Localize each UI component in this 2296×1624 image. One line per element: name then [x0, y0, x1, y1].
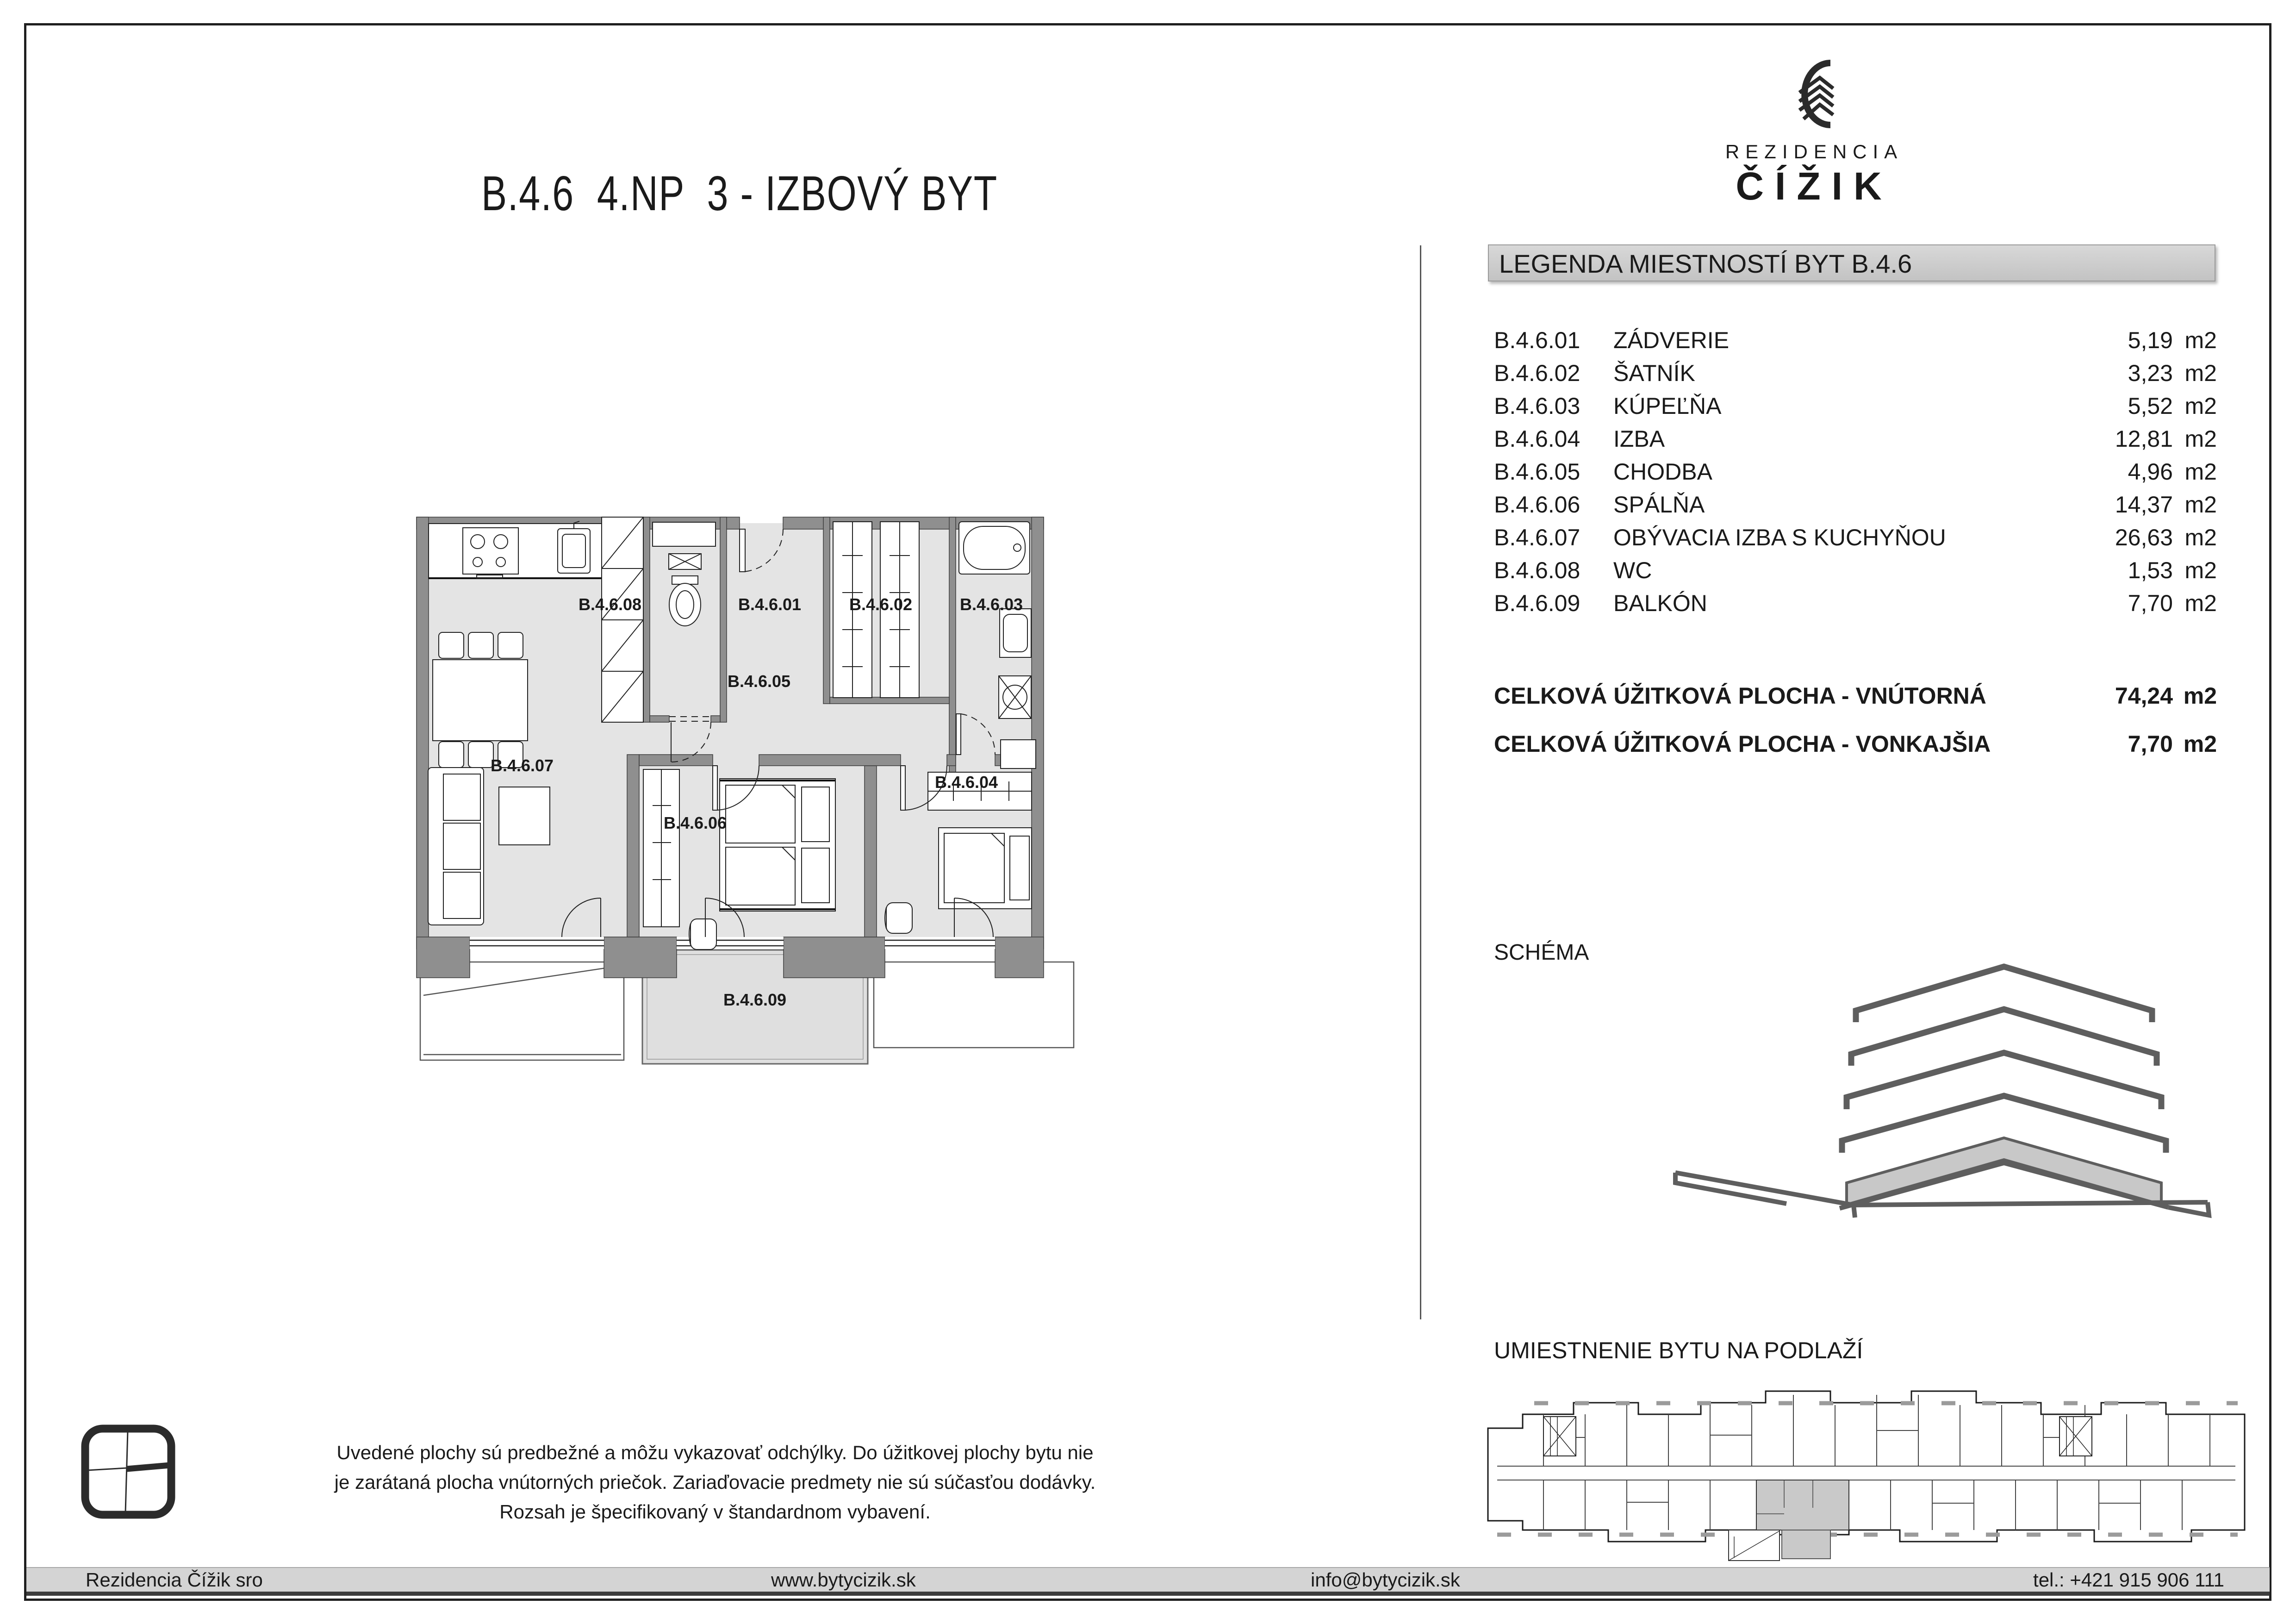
floor-location-plan	[1479, 1382, 2254, 1574]
label-room-08: B.4.6.08	[579, 595, 641, 614]
stair-elevator-core-left	[1543, 1417, 1576, 1456]
table-row: B.4.6.02 ŠATNÍK 3,23 m2	[1494, 357, 2217, 390]
room-name: BALKÓN	[1613, 587, 2099, 620]
room-unit: m2	[2173, 324, 2217, 357]
room-name: ZÁDVERIE	[1613, 324, 2099, 357]
dining-table	[433, 632, 528, 768]
total-inner-unit: m2	[2173, 680, 2217, 712]
label-room-03: B.4.6.03	[960, 595, 1023, 614]
stair-elevator-core-right	[2060, 1417, 2092, 1456]
label-room-04: B.4.6.04	[935, 773, 998, 792]
single-bed	[939, 828, 1032, 909]
hall-cabinets	[602, 517, 643, 722]
coffee-table	[499, 787, 550, 845]
room-unit: m2	[2173, 521, 2217, 554]
label-room-01: B.4.6.01	[738, 595, 801, 614]
total-outer-value: 7,70	[2094, 728, 2173, 760]
total-outer-unit: m2	[2173, 728, 2217, 760]
room-unit: m2	[2173, 587, 2217, 620]
room-area: 26,63	[2099, 521, 2173, 554]
room-code: B.4.6.05	[1494, 456, 1613, 488]
room-name: KÚPEĽŇA	[1613, 390, 2099, 423]
footer-email: info@bytycizik.sk	[1311, 1568, 1460, 1592]
balcony-windows	[470, 937, 995, 949]
table-row: B.4.6.08 WC 1,53 m2	[1494, 554, 2217, 587]
bedroom-chair	[689, 919, 716, 949]
room-code: B.4.6.03	[1494, 390, 1613, 423]
room-area: 5,19	[2099, 324, 2173, 357]
room-code: B.4.6.08	[1494, 554, 1613, 587]
bathroom-shelf	[1001, 740, 1036, 768]
stove	[463, 528, 518, 578]
table-row: B.4.6.04 IZBA 12,81 m2	[1494, 423, 2217, 456]
room-name: OBÝVACIA IZBA S KUCHYŇOU	[1613, 521, 2099, 554]
total-inner-label: CELKOVÁ ÚŽITKOVÁ PLOCHA - VNÚTORNÁ	[1494, 680, 2094, 712]
room-name: ŠATNÍK	[1613, 357, 2099, 390]
bathroom-sink	[1000, 609, 1031, 657]
room-table: B.4.6.01 ZÁDVERIE 5,19 m2 B.4.6.02 ŠATNÍ…	[1494, 324, 2217, 620]
room-code: B.4.6.02	[1494, 357, 1613, 390]
room-unit: m2	[2173, 390, 2217, 423]
column-divider	[1420, 245, 1421, 1319]
disclaimer-text: Uvedené plochy sú predbežné a môžu vykaz…	[331, 1438, 1099, 1527]
brand-logo: REZIDENCIA ČÍŽIK	[1715, 56, 1914, 209]
location-section-label: UMIESTNENIE BYTU NA PODLAŽÍ	[1494, 1337, 1863, 1364]
double-bed	[720, 779, 835, 911]
room-name: CHODBA	[1613, 456, 2099, 488]
sofa	[428, 768, 484, 925]
footer-bar: Rezidencia Čížik sro www.bytycizik.sk in…	[26, 1567, 2270, 1596]
room-name: IZBA	[1613, 423, 2099, 456]
label-room-06: B.4.6.06	[664, 813, 727, 832]
room-unit: m2	[2173, 423, 2217, 456]
room-code: B.4.6.06	[1494, 488, 1613, 521]
room-area: 7,70	[2099, 587, 2173, 620]
room-name: SPÁLŇA	[1613, 488, 2099, 521]
rezidencia-cizik-logo-icon	[1786, 56, 1842, 132]
washing-machine	[999, 676, 1031, 718]
label-room-05: B.4.6.05	[728, 672, 790, 691]
corner-square-icon	[79, 1422, 178, 1522]
room-code: B.4.6.07	[1494, 521, 1613, 554]
legend-header-label: LEGENDA MIESTNOSTÍ BYT B.4.6	[1499, 249, 1912, 278]
room-code: B.4.6.09	[1494, 587, 1613, 620]
room-code: B.4.6.01	[1494, 324, 1613, 357]
total-outer-label: CELKOVÁ ÚŽITKOVÁ PLOCHA - VONKAJŠIA	[1494, 728, 2094, 760]
label-room-09: B.4.6.09	[723, 990, 786, 1009]
room-name: WC	[1613, 554, 2099, 587]
label-room-02: B.4.6.02	[849, 595, 912, 614]
table-row: B.4.6.09 BALKÓN 7,70 m2	[1494, 587, 2217, 620]
table-row: B.4.6.06 SPÁLŇA 14,37 m2	[1494, 488, 2217, 521]
room-unit: m2	[2173, 554, 2217, 587]
brand-name-bottom: ČÍŽIK	[1715, 164, 1914, 209]
room-area: 1,53	[2099, 554, 2173, 587]
footer-phone: tel.: +421 915 906 111	[2033, 1568, 2224, 1592]
total-outer-row: CELKOVÁ ÚŽITKOVÁ PLOCHA - VONKAJŠIA 7,70…	[1494, 728, 2217, 760]
room-area: 14,37	[2099, 488, 2173, 521]
table-row: B.4.6.03 KÚPEĽŇA 5,52 m2	[1494, 390, 2217, 423]
room-unit: m2	[2173, 488, 2217, 521]
bathtub	[959, 522, 1030, 574]
kitchen-sink	[558, 521, 590, 573]
plan-sheet: B.4.6 4.NP 3 - IZBOVÝ BYT REZIDENCIA ČÍŽ…	[0, 0, 2296, 1624]
room-unit: m2	[2173, 357, 2217, 390]
room-area: 12,81	[2099, 423, 2173, 456]
label-room-07: B.4.6.07	[491, 756, 554, 775]
apartment-floor-plan: B.4.6.08 B.4.6.01 B.4.6.02 B.4.6.03 B.4.…	[414, 514, 1090, 1069]
schema-section-label: SCHÉMA	[1494, 940, 1589, 965]
room-unit: m2	[2173, 456, 2217, 488]
footer-website: www.bytycizik.sk	[771, 1568, 916, 1592]
room-area: 5,52	[2099, 390, 2173, 423]
table-row: B.4.6.01 ZÁDVERIE 5,19 m2	[1494, 324, 2217, 357]
room-code: B.4.6.04	[1494, 423, 1613, 456]
brand-name-top: REZIDENCIA	[1715, 141, 1914, 163]
footer-company: Rezidencia Čížik sro	[86, 1568, 263, 1592]
room-area: 3,23	[2099, 357, 2173, 390]
table-row: B.4.6.05 CHODBA 4,96 m2	[1494, 456, 2217, 488]
room-chair	[885, 903, 912, 933]
building-schema-drawing	[1648, 949, 2221, 1218]
table-row: B.4.6.07 OBÝVACIA IZBA S KUCHYŇOU 26,63 …	[1494, 521, 2217, 554]
total-inner-row: CELKOVÁ ÚŽITKOVÁ PLOCHA - VNÚTORNÁ 74,24…	[1494, 680, 2217, 712]
legend-header-bar: LEGENDA MIESTNOSTÍ BYT B.4.6	[1488, 244, 2215, 281]
page-title: B.4.6 4.NP 3 - IZBOVÝ BYT	[481, 166, 998, 222]
room-area: 4,96	[2099, 456, 2173, 488]
total-inner-value: 74,24	[2094, 680, 2173, 712]
bedroom-wardrobe	[643, 769, 679, 927]
